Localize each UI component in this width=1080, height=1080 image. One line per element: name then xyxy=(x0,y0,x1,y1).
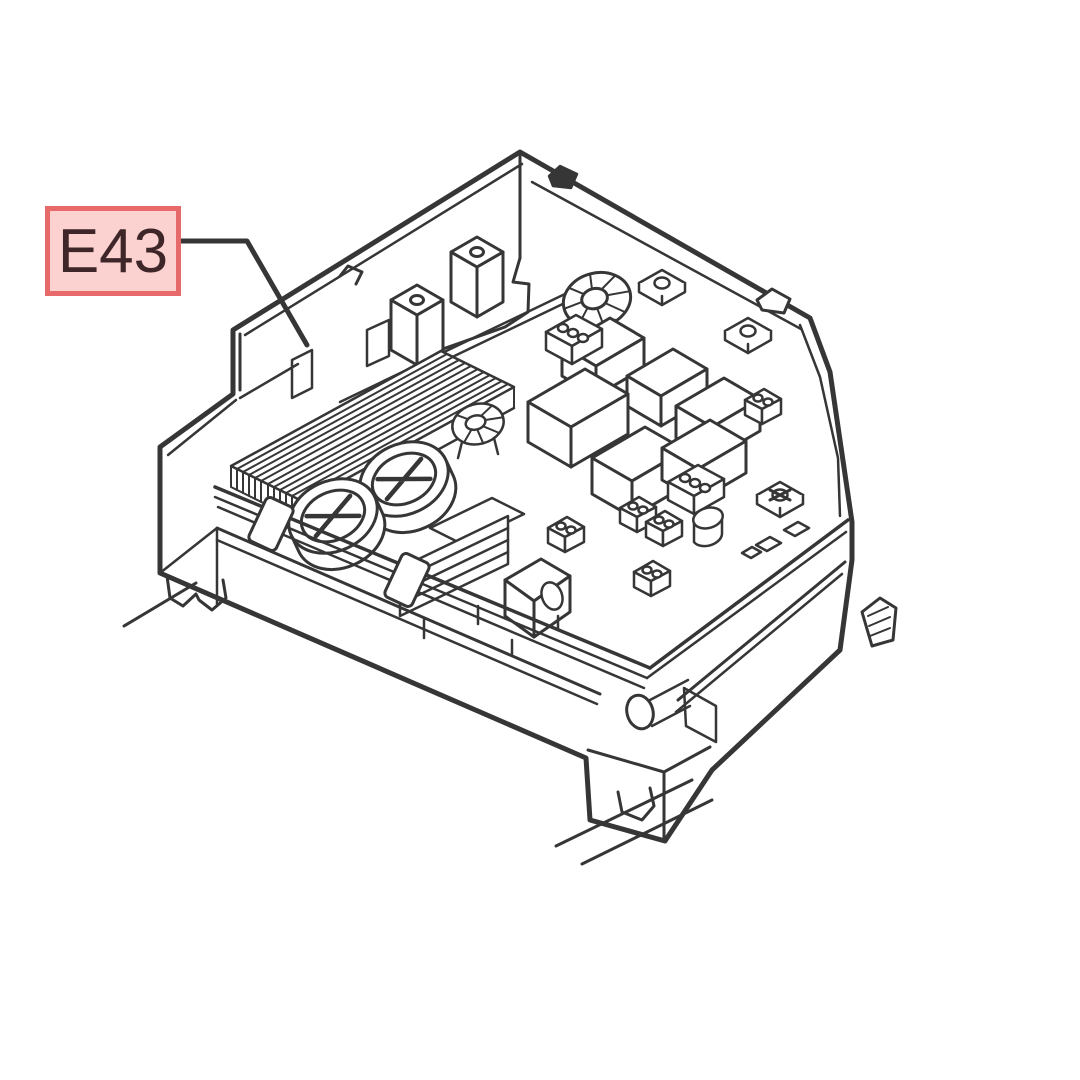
ink-layer xyxy=(124,152,896,864)
part-label-text: E43 xyxy=(58,216,168,287)
detached-clip-part xyxy=(862,598,896,646)
parts-diagram-canvas: E43 xyxy=(0,0,1080,1080)
part-label-callout: E43 xyxy=(45,206,181,296)
control-board-assembly-drawing xyxy=(0,0,1080,1080)
